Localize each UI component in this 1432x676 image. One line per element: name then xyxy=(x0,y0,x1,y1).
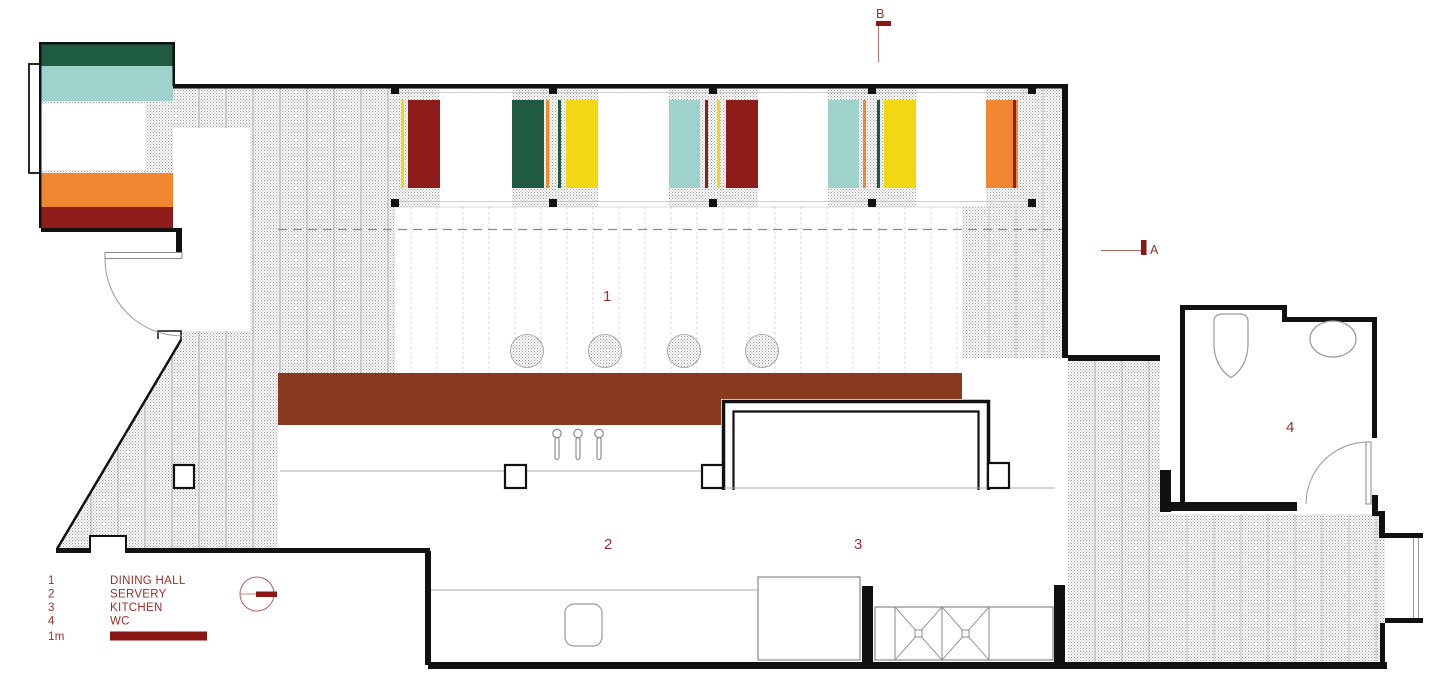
tap xyxy=(576,438,580,460)
room-label-wc: 4 xyxy=(1286,419,1294,436)
table-top-maroon xyxy=(726,100,758,188)
kitchen-island xyxy=(758,577,860,660)
kitchen-fittings xyxy=(428,577,1053,660)
legend-num: 1 xyxy=(48,575,55,587)
tap xyxy=(553,429,561,437)
round-column xyxy=(668,335,701,368)
table-top-yellow xyxy=(566,100,598,188)
legend-num: 2 xyxy=(48,589,55,601)
east-terrace-paving xyxy=(1068,361,1160,663)
entry-mat-maroon xyxy=(41,207,173,228)
entry-mat-teal xyxy=(41,66,173,101)
section-marker-b: B xyxy=(876,7,891,62)
entry-hatch-strip xyxy=(41,170,173,173)
entry-mat-green xyxy=(41,44,173,66)
room-label-servery: 2 xyxy=(604,536,612,553)
section-b-flag xyxy=(876,21,891,26)
legend-label-servery: SERVERY xyxy=(110,589,167,601)
tap xyxy=(595,429,603,437)
scale-bar xyxy=(110,632,207,641)
entry-hatch-strip xyxy=(145,101,173,173)
room-label-dining-hall: 1 xyxy=(603,288,611,305)
north-wall xyxy=(173,84,1068,89)
column-pier xyxy=(988,463,1009,488)
wc-door-leaf xyxy=(1366,442,1371,504)
section-a-flag xyxy=(1141,240,1147,255)
legend-num: 4 xyxy=(48,616,55,628)
legend-num: 3 xyxy=(48,602,55,614)
kitchen-sink xyxy=(565,604,602,646)
legend-label-dining-hall: DINING HALL xyxy=(110,575,186,587)
legend-label-kitchen: KITCHEN xyxy=(110,602,163,614)
legend-label-wc: WC xyxy=(110,616,130,628)
cold-room xyxy=(721,399,992,491)
range-burner xyxy=(962,630,969,637)
north-orientation-symbol xyxy=(240,577,277,611)
window-bay xyxy=(916,89,986,207)
entry-door-leaf xyxy=(105,253,182,259)
table-top-maroon xyxy=(408,100,440,188)
floor-plan-page: B A 1 2 3 4 1 DINING HALL 2 SERVERY 3 KI… xyxy=(0,0,1432,676)
dining-hall-floor xyxy=(278,207,1062,373)
table-top-teal xyxy=(669,100,700,188)
column-pier xyxy=(702,465,723,488)
round-column xyxy=(746,335,779,368)
southeast-terrace-paving xyxy=(1160,514,1385,663)
kitchen-west-wall xyxy=(425,551,431,665)
scale-label: 1m xyxy=(48,631,65,643)
window-wall-band xyxy=(391,86,1036,207)
section-a-label: A xyxy=(1150,243,1159,257)
column-pier xyxy=(174,465,194,488)
counter-taps xyxy=(553,429,603,459)
round-column xyxy=(589,335,622,368)
column-pier xyxy=(505,465,526,488)
entrance-block xyxy=(29,42,182,336)
wall-pier xyxy=(1054,585,1065,663)
range-burner xyxy=(915,630,922,637)
entry-door-swing xyxy=(105,259,182,336)
table-top-green xyxy=(512,100,544,188)
window-bay xyxy=(440,89,512,207)
washbasin xyxy=(1310,321,1356,357)
tap xyxy=(555,438,559,460)
tap xyxy=(597,438,601,460)
bay-window-glazing xyxy=(1414,538,1419,618)
window-bay xyxy=(758,89,828,207)
legend: 1 DINING HALL 2 SERVERY 3 KITCHEN 4 WC 1… xyxy=(48,575,277,643)
south-wall xyxy=(428,662,1387,669)
table-top-yellow xyxy=(884,100,916,188)
entry-mat-orange xyxy=(41,173,173,207)
room-label-kitchen: 3 xyxy=(854,536,862,553)
round-columns xyxy=(511,335,779,368)
table-top-teal xyxy=(828,100,859,188)
floor-plan-canvas: B A 1 2 3 4 1 DINING HALL 2 SERVERY 3 KI… xyxy=(0,0,1432,676)
terrace-notch xyxy=(90,536,126,553)
section-b-label: B xyxy=(876,7,884,21)
east-wall xyxy=(1062,84,1068,358)
tap xyxy=(574,429,582,437)
window-bay xyxy=(598,89,669,207)
wall-pier xyxy=(862,586,873,663)
round-column xyxy=(511,335,544,368)
section-marker-a: A xyxy=(1101,240,1159,257)
